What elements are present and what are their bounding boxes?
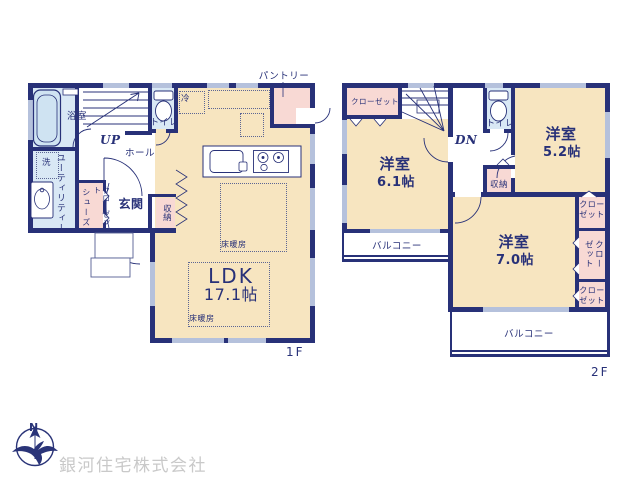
pantry-passage bbox=[296, 108, 310, 124]
bedroom-52-label: 洋室 bbox=[538, 125, 584, 143]
window bbox=[103, 83, 129, 88]
bedroom-70-size: 7.0帖 bbox=[490, 253, 540, 269]
laundry-label: 洗 bbox=[42, 158, 51, 168]
balcony-rail bbox=[342, 259, 452, 262]
shoes-closet-label-1: シューズ bbox=[81, 188, 90, 228]
entrance-label: 玄関 bbox=[112, 197, 150, 211]
closet-2f-a-label: クローゼット bbox=[351, 97, 397, 106]
company-name: 銀河住宅株式会社 bbox=[59, 451, 207, 476]
storage-2f-label: 収納 bbox=[488, 180, 510, 190]
window bbox=[150, 262, 155, 306]
window bbox=[342, 185, 347, 223]
window bbox=[310, 258, 315, 306]
cupboard-space bbox=[208, 90, 270, 109]
window bbox=[605, 112, 610, 158]
shoes-closet-label-2: クローゼット bbox=[92, 186, 110, 232]
balcony-rail bbox=[450, 350, 610, 352]
window bbox=[483, 307, 569, 312]
window bbox=[236, 83, 258, 88]
toilet-1f-label: トイレ bbox=[150, 118, 179, 129]
balcony-left-label: バルコニー bbox=[370, 241, 424, 252]
balcony-rail bbox=[342, 233, 344, 261]
stairs-1f bbox=[83, 92, 148, 127]
closet-2f-d-label: クローゼット bbox=[579, 286, 605, 305]
wall bbox=[148, 194, 176, 197]
wall bbox=[342, 115, 402, 119]
stairs-up-label: UP bbox=[100, 133, 121, 147]
window bbox=[207, 83, 229, 88]
window bbox=[310, 188, 315, 230]
floor2-name: 2F bbox=[591, 365, 610, 379]
hall-label: ホール bbox=[120, 148, 160, 159]
bath-label: 浴室 bbox=[62, 111, 92, 122]
wall bbox=[310, 83, 315, 108]
wall bbox=[575, 279, 610, 282]
ldk-size-label: 17.1帖 bbox=[192, 285, 270, 304]
fridge-label: 冷 bbox=[181, 94, 190, 104]
bedroom-52-size: 5.2帖 bbox=[537, 145, 587, 161]
wall bbox=[575, 228, 610, 231]
floor1-name: 1F bbox=[286, 345, 305, 359]
window bbox=[370, 229, 440, 233]
balcony-rail bbox=[342, 255, 452, 257]
balcony-rail bbox=[450, 354, 610, 357]
closet-2f-b-label: クローゼット bbox=[579, 200, 605, 219]
wall bbox=[511, 133, 515, 155]
stairs-down-label: DN bbox=[455, 133, 477, 147]
balcony-rail bbox=[607, 312, 610, 355]
wall bbox=[166, 129, 178, 133]
floor-heating-label-1: 床暖房 bbox=[221, 240, 247, 250]
storage-1f-label: 収納 bbox=[161, 204, 170, 230]
window bbox=[540, 83, 586, 88]
bedroom-61-size: 6.1帖 bbox=[371, 175, 421, 191]
window bbox=[172, 338, 224, 343]
room-bedroom-70 bbox=[453, 197, 575, 307]
utility-label: ユーティリティー bbox=[54, 153, 64, 233]
closet-2f-c-label: クローゼット bbox=[583, 240, 603, 270]
toilet-2f-label: トイレ bbox=[486, 119, 513, 130]
bedroom-61-label: 洋室 bbox=[372, 155, 418, 173]
compass-north-label: N bbox=[29, 421, 39, 434]
wall bbox=[125, 131, 152, 135]
bedroom-70-label: 洋室 bbox=[491, 233, 537, 251]
wall bbox=[28, 147, 79, 151]
window bbox=[408, 83, 434, 88]
wall bbox=[75, 83, 79, 233]
window bbox=[152, 83, 172, 88]
wall bbox=[481, 192, 610, 197]
room-bedroom-61 bbox=[347, 119, 448, 229]
wall bbox=[448, 83, 453, 137]
window bbox=[485, 83, 503, 88]
pantry-label: パントリー bbox=[256, 71, 312, 82]
balcony-rail bbox=[450, 312, 452, 355]
furniture-space bbox=[240, 113, 264, 137]
balcony-bottom-label: バルコニー bbox=[502, 329, 556, 340]
porch-steps bbox=[91, 233, 133, 277]
bird-logo-icon bbox=[12, 441, 58, 465]
floor-heating-label-2: 床暖房 bbox=[189, 314, 215, 324]
wall bbox=[270, 124, 315, 128]
wall bbox=[483, 165, 515, 169]
window bbox=[228, 338, 266, 343]
window bbox=[28, 100, 33, 140]
window bbox=[310, 134, 315, 164]
window bbox=[342, 120, 347, 154]
wall bbox=[270, 83, 274, 128]
wall bbox=[448, 162, 453, 312]
wall bbox=[79, 180, 106, 183]
wall bbox=[448, 192, 455, 197]
floorplan-canvas: パントリー 冷 トイレ UP ホール 浴室 洗 ユーティリティー シューズ クロ… bbox=[0, 0, 640, 480]
